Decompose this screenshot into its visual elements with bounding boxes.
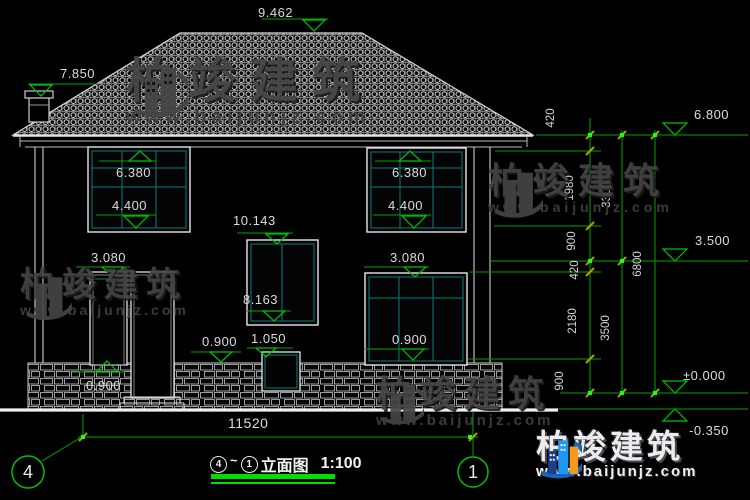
label-w2fR-head: 6.380 — [392, 166, 427, 179]
dim-6800: 6800 — [633, 242, 645, 286]
dim-11520: 11520 — [228, 416, 268, 430]
label-w1fR-sill: 0.900 — [392, 333, 427, 346]
dim-3500: 3500 — [601, 306, 613, 350]
dim-2180: 2180 — [568, 299, 580, 343]
window-small — [262, 352, 300, 391]
label-w1fR-head: 3.080 — [390, 251, 425, 264]
level-stair-sill: 8.163 — [243, 293, 278, 306]
level-chimney: 7.850 — [60, 67, 95, 80]
title-grid-1: 1 — [241, 456, 258, 473]
entrance-door — [131, 272, 174, 398]
title-scale: 1:100 — [321, 455, 362, 473]
level-floor2: 3.500 — [695, 234, 730, 247]
level-eave: 6.800 — [694, 108, 729, 121]
label-door-head: 3.080 — [91, 251, 126, 264]
hip-roof — [13, 33, 533, 147]
drawing-title: 4~1立面图1:100 — [210, 452, 362, 476]
label-w2fL-sill: 4.400 — [112, 199, 147, 212]
title-underline-thin — [211, 482, 335, 484]
level-stair-head: 10.143 — [233, 214, 276, 227]
label-small-head: 1.050 — [251, 332, 286, 345]
dim-1980: 1980 — [565, 166, 577, 210]
window-1f-right — [365, 273, 467, 365]
dim-420-top: 420 — [546, 96, 558, 140]
level-ridge: 9.462 — [258, 6, 293, 19]
cad-elevation-viewport: 4 1 9.462 7.850 10.143 8.163 6.380 4.400… — [0, 0, 750, 500]
window-2f-left — [88, 147, 190, 232]
label-small-side: 0.900 — [202, 335, 237, 348]
label-w2fR-sill: 4.400 — [388, 199, 423, 212]
dim-420-b: 420 — [570, 248, 582, 292]
chimney — [25, 91, 53, 122]
level-site: -0.350 — [689, 424, 729, 437]
svg-text:4: 4 — [23, 462, 33, 482]
window-stair — [247, 240, 318, 325]
title-tilde: ~ — [230, 453, 238, 468]
grid-bubble-1: 1 — [458, 457, 488, 487]
label-door-base: 0.900 — [86, 379, 121, 392]
title-underline-thick — [211, 474, 335, 479]
level-zero: ±0.000 — [683, 369, 726, 382]
label-w2fL-head: 6.380 — [116, 166, 151, 179]
grid-bubble-4: 4 — [12, 456, 44, 488]
svg-text:1: 1 — [468, 462, 478, 482]
dim-900-b: 900 — [555, 359, 567, 403]
title-text: 立面图 — [261, 452, 309, 476]
dim-3300: 3300 — [602, 173, 614, 217]
door-left — [90, 272, 127, 365]
title-grid-4: 4 — [210, 456, 227, 473]
